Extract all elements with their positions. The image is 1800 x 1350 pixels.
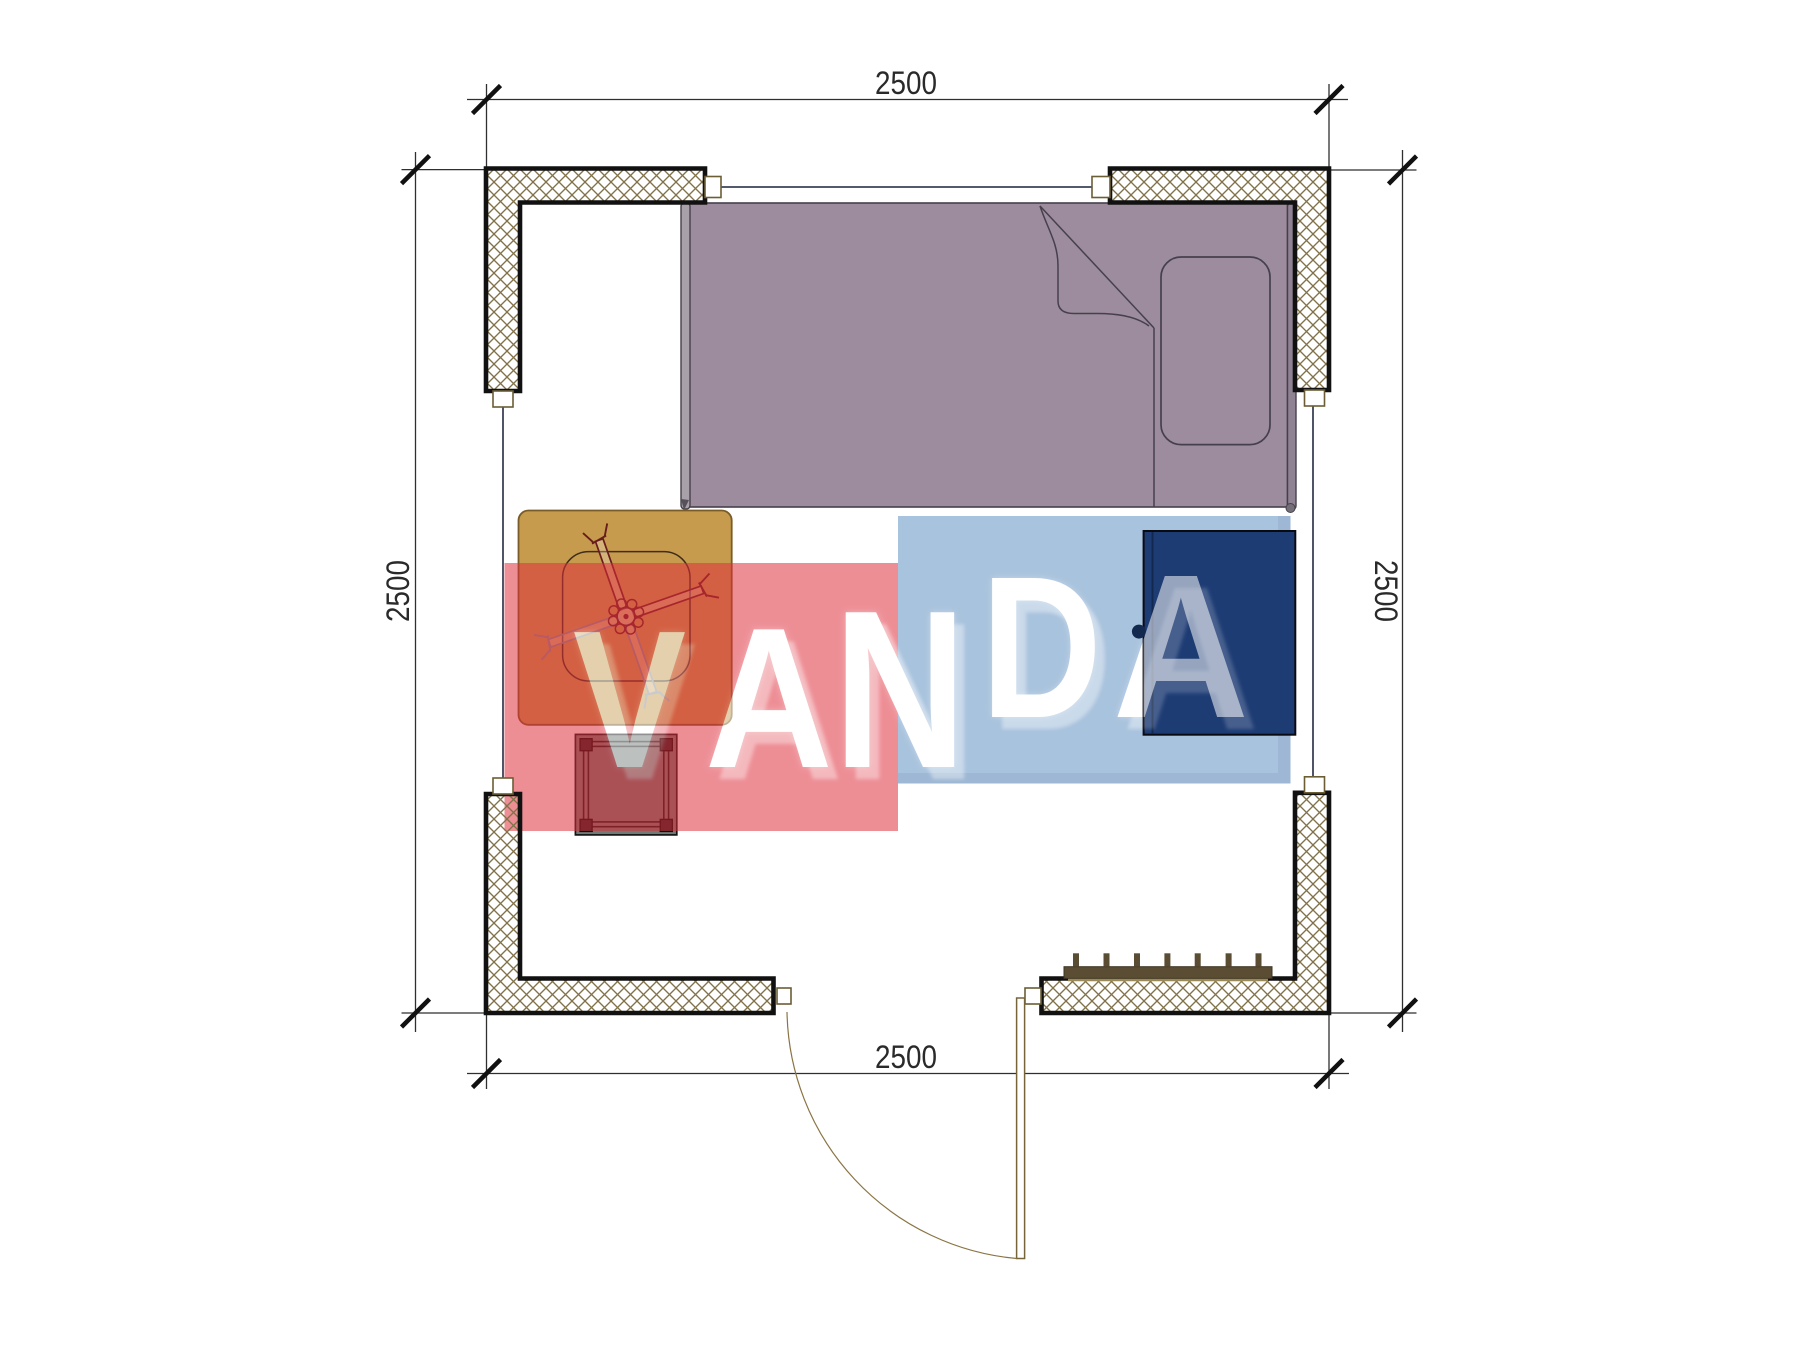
svg-text:V: V [573,589,686,808]
svg-text:A: A [705,586,833,810]
svg-text:N: N [833,564,966,816]
svg-text:2500: 2500 [1368,560,1403,622]
svg-text:2500: 2500 [875,1040,937,1075]
svg-text:D: D [981,535,1102,760]
svg-text:2500: 2500 [381,560,416,622]
svg-text:2500: 2500 [875,66,937,101]
